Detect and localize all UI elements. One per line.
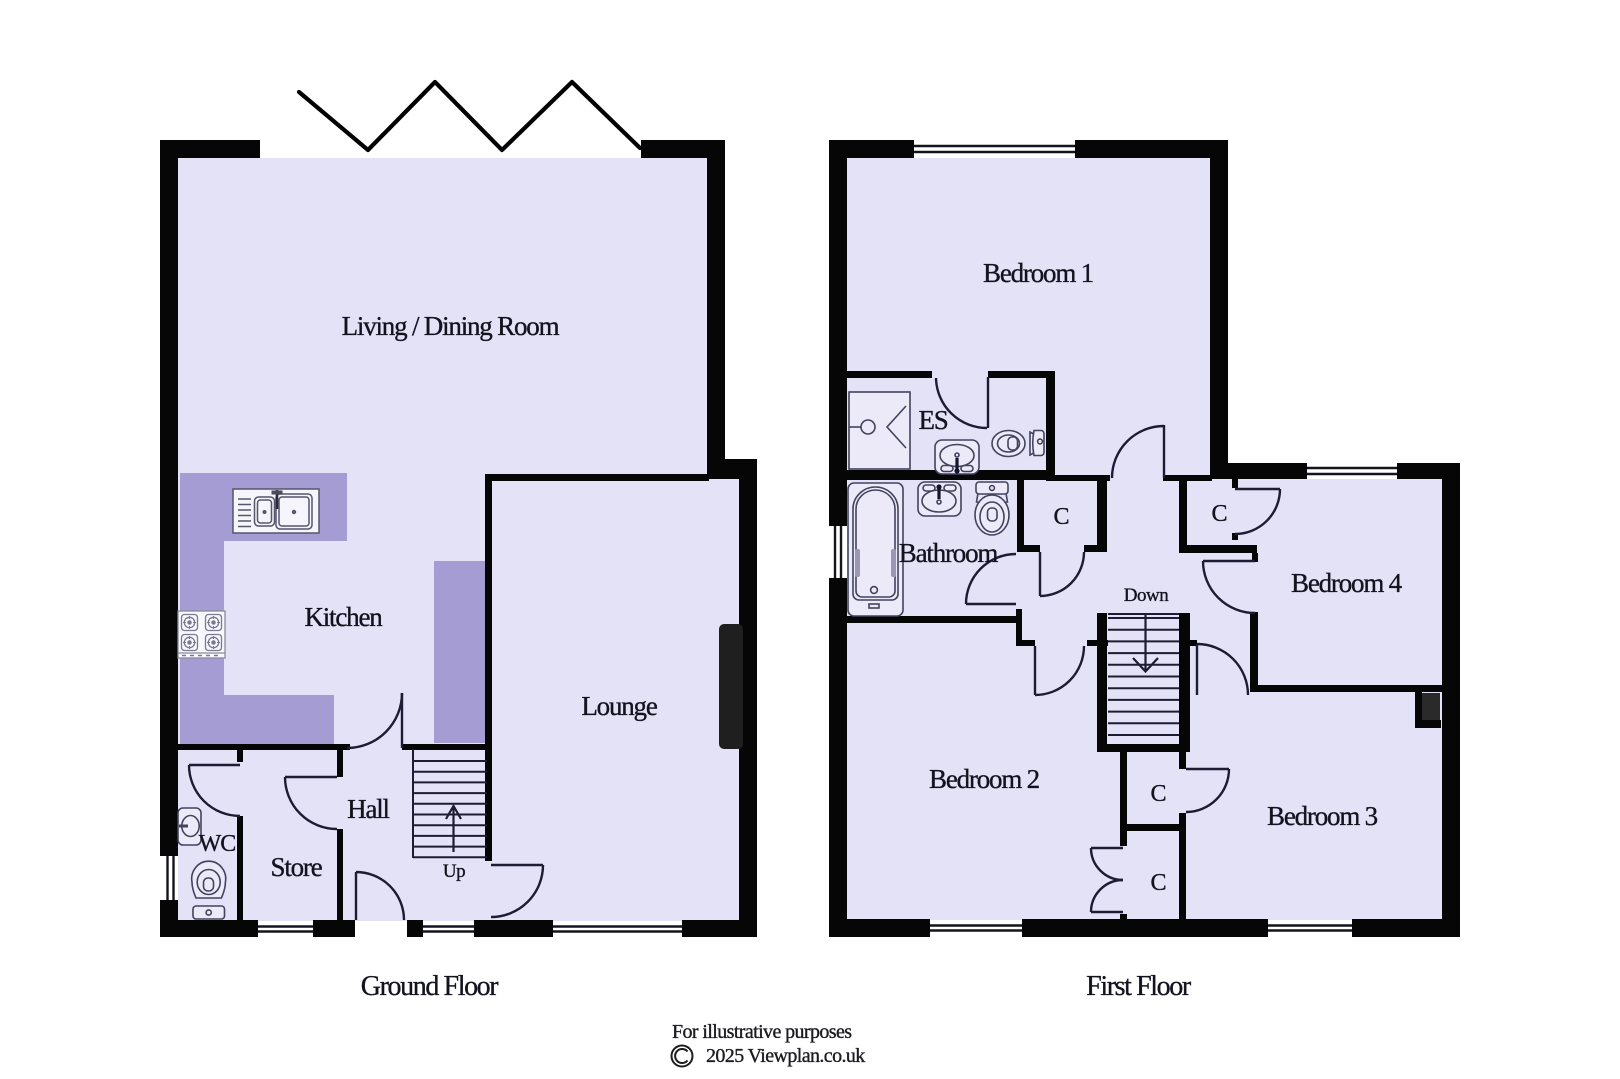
svg-text:Hall: Hall	[347, 794, 389, 824]
svg-text:Bedroom 3: Bedroom 3	[1267, 801, 1378, 831]
svg-text:Bathroom: Bathroom	[899, 538, 999, 568]
svg-text:Store: Store	[271, 852, 323, 882]
svg-text:Lounge: Lounge	[581, 691, 657, 721]
svg-text:Kitchen: Kitchen	[304, 602, 383, 632]
svg-text:C: C	[1150, 870, 1165, 896]
svg-text:2025 Viewplan.co.uk: 2025 Viewplan.co.uk	[706, 1045, 865, 1067]
svg-text:For illustrative purposes: For illustrative purposes	[672, 1021, 852, 1043]
svg-text:WC: WC	[199, 831, 236, 857]
svg-text:First Floor: First Floor	[1086, 971, 1192, 1002]
svg-text:C: C	[1053, 504, 1068, 530]
svg-text:Bedroom 4: Bedroom 4	[1291, 568, 1403, 598]
svg-text:Living / Dining Room: Living / Dining Room	[342, 311, 560, 341]
svg-text:ES: ES	[918, 405, 947, 435]
svg-text:Bedroom 2: Bedroom 2	[929, 764, 1040, 794]
svg-text:C: C	[1211, 501, 1226, 527]
svg-text:Ground Floor: Ground Floor	[361, 971, 499, 1002]
svg-text:Up: Up	[443, 861, 465, 882]
svg-text:Bedroom 1: Bedroom 1	[983, 258, 1093, 288]
svg-text:Down: Down	[1124, 585, 1169, 606]
svg-text:C: C	[1150, 781, 1165, 807]
